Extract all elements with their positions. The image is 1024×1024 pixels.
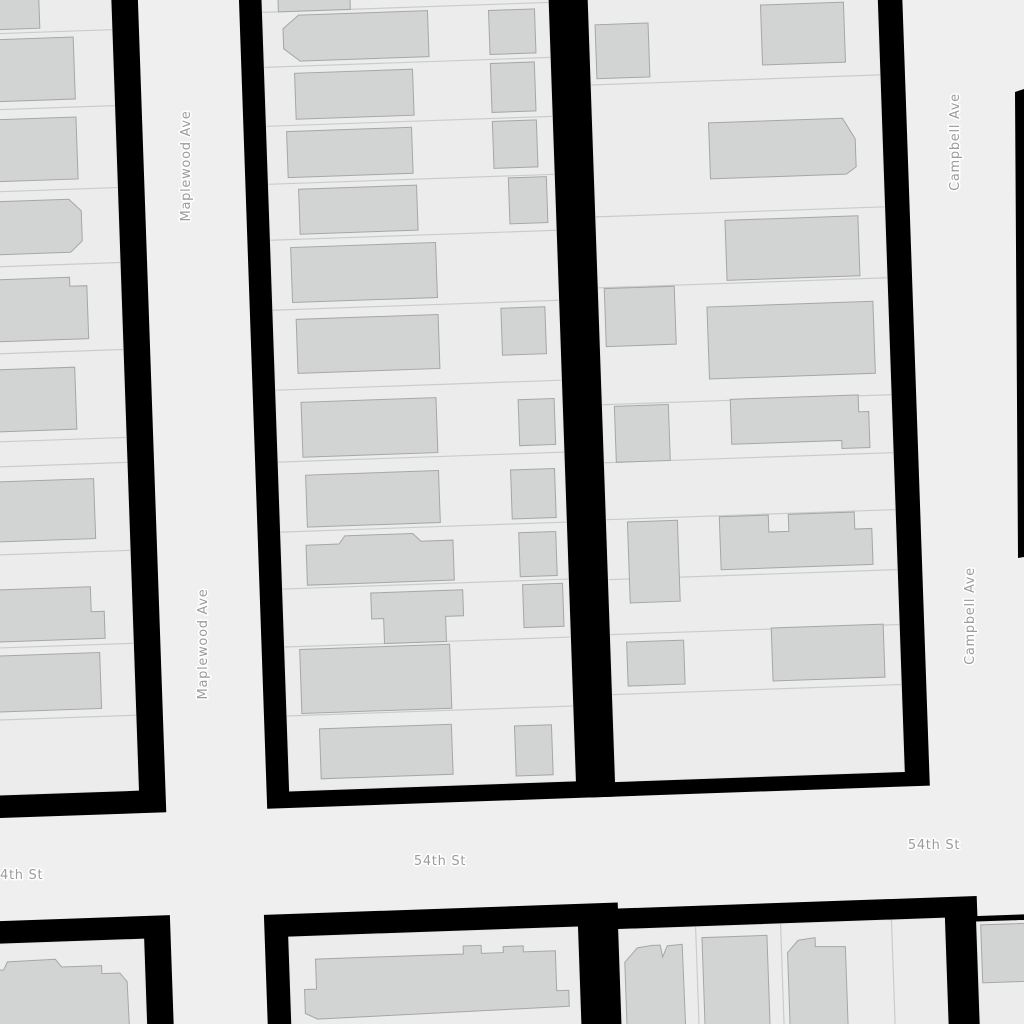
building-footprint	[614, 404, 670, 462]
building-footprint	[787, 937, 850, 1024]
building-footprint	[0, 37, 75, 105]
block-sw	[0, 915, 179, 1024]
building-footprint	[707, 301, 875, 379]
block-north-center	[237, 0, 620, 809]
block-south-center	[264, 903, 627, 1024]
building-footprint	[296, 314, 440, 373]
building-footprint	[709, 118, 857, 179]
building-footprint	[287, 127, 414, 177]
street-name-label: 54th St	[414, 854, 466, 869]
building-footprint	[0, 277, 89, 345]
building-footprint	[0, 586, 105, 644]
map-view: Maplewood AveMaplewood AveCampbell AveCa…	[0, 0, 1024, 1024]
block-south-far-right	[960, 908, 1024, 1024]
building-footprint	[295, 69, 415, 119]
building-footprint	[306, 471, 441, 528]
building-footprint	[301, 398, 438, 458]
building-footprint	[492, 120, 538, 169]
street-name-label: 54th St	[908, 838, 960, 853]
building-footprint	[725, 216, 860, 281]
building-footprint	[627, 640, 686, 686]
building-footprint	[519, 531, 558, 576]
building-footprint	[300, 644, 452, 713]
building-footprint	[0, 199, 83, 258]
building-footprint	[627, 520, 680, 603]
building-footprint	[0, 117, 78, 185]
building-footprint	[702, 935, 773, 1024]
building-footprint	[0, 479, 96, 545]
building-footprint	[518, 398, 556, 445]
building-footprint	[299, 185, 418, 234]
building-footprint	[283, 11, 430, 62]
building-footprint	[719, 511, 873, 569]
building-footprint	[490, 62, 536, 113]
street-name-label: Campbell Ave	[963, 567, 978, 665]
building-footprint	[319, 724, 453, 779]
building-footprint	[981, 922, 1024, 983]
street-name-label: Maplewood Ave	[196, 589, 211, 700]
street-name-label: Campbell Ave	[948, 93, 963, 191]
street-name-label: Maplewood Ave	[179, 111, 194, 222]
block-nw	[0, 0, 166, 820]
building-footprint	[488, 9, 536, 55]
building-footprint	[771, 624, 885, 681]
building-footprint	[514, 725, 553, 776]
street-name-label: 54th St	[0, 868, 43, 883]
block-north-right	[560, 0, 930, 797]
building-footprint	[0, 652, 102, 714]
building-footprint	[0, 367, 77, 435]
building-footprint	[760, 2, 845, 65]
building-footprint	[624, 944, 688, 1024]
building-footprint	[278, 0, 351, 12]
building-footprint	[604, 286, 676, 346]
building-footprint	[501, 307, 547, 356]
block-south-right	[594, 896, 986, 1024]
building-footprint	[595, 23, 650, 79]
building-footprint	[508, 177, 548, 224]
building-footprint	[511, 468, 557, 519]
building-footprint	[0, 0, 40, 33]
building-footprint	[523, 583, 564, 627]
building-footprint	[291, 243, 438, 303]
map-canvas[interactable]: Maplewood AveMaplewood AveCampbell AveCa…	[0, 0, 1024, 1024]
